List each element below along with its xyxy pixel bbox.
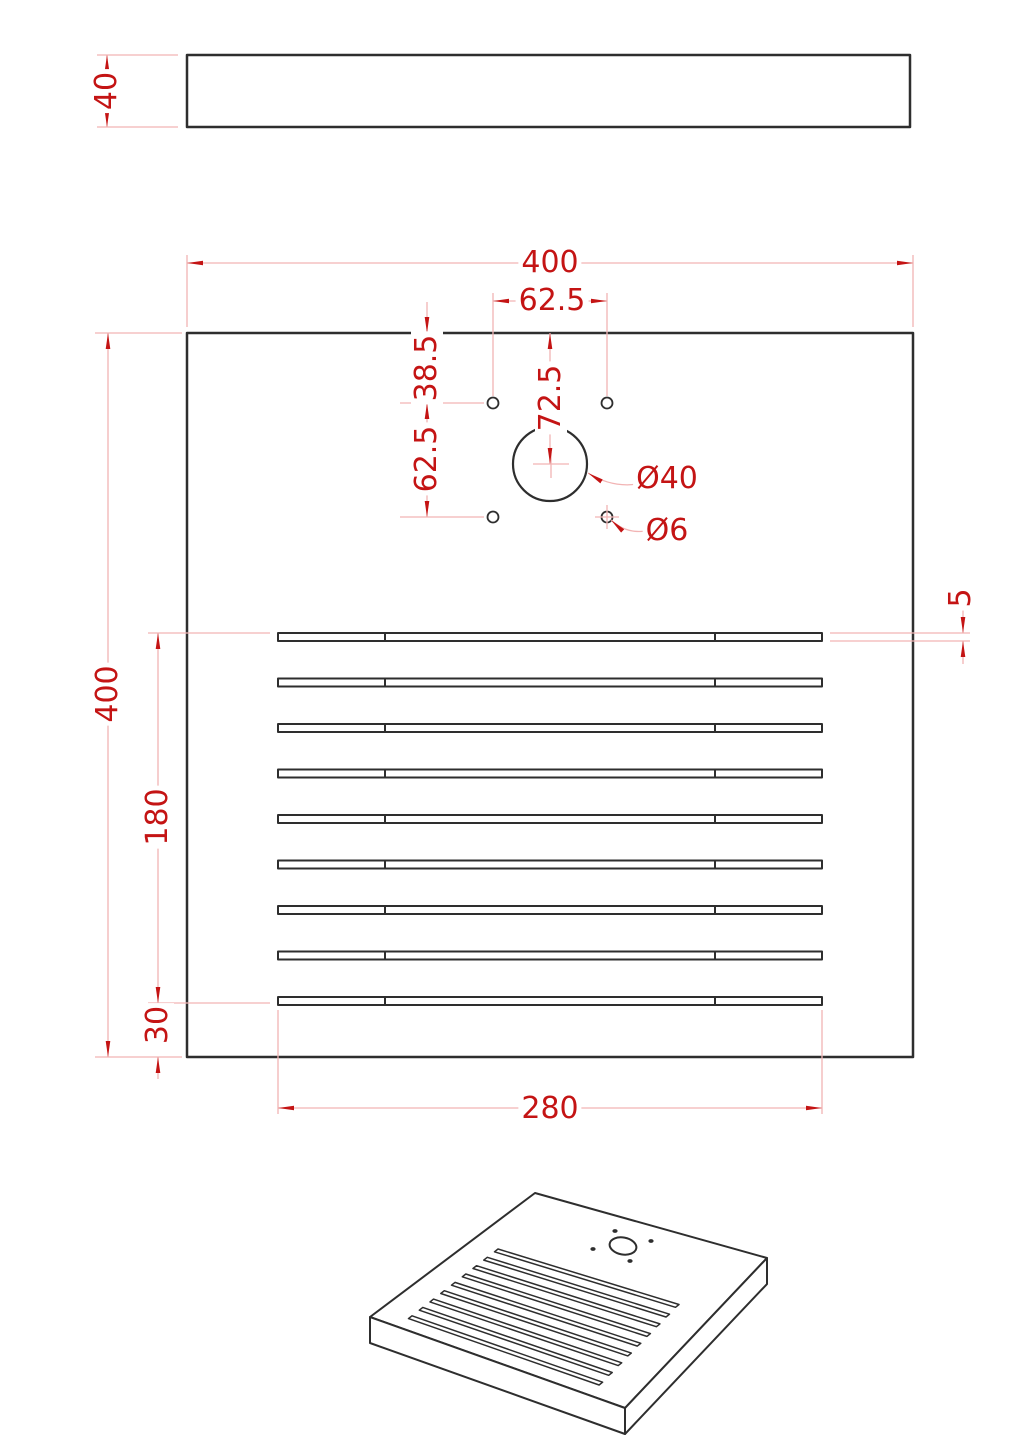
slot xyxy=(278,906,822,914)
isometric-view xyxy=(370,1193,767,1434)
dim-label-slot-bottom-offset: 30 xyxy=(142,1003,174,1047)
slot xyxy=(278,997,822,1005)
dim-label-small-hole-diameter: Ø6 xyxy=(643,515,692,547)
iso-mounting-hole xyxy=(612,1229,617,1233)
slot xyxy=(278,815,822,823)
dim-label-center-hole-offset: 72.5 xyxy=(535,362,567,435)
slot xyxy=(278,679,822,687)
slot xyxy=(278,861,822,869)
iso-mounting-hole xyxy=(648,1239,653,1243)
mounting-hole xyxy=(488,512,499,523)
dim-label-slot-group-span: 180 xyxy=(142,785,174,848)
engineering-drawing-canvas xyxy=(0,0,1024,1448)
iso-mounting-hole xyxy=(627,1259,632,1263)
drawing-sheet: 40 400 62.5 38.5 72.5 62.5 Ø40 Ø6 5 400 … xyxy=(0,0,1024,1448)
dim-label-plate-width: 400 xyxy=(518,247,581,279)
dim-label-hole-spacing-y: 62.5 xyxy=(411,423,443,496)
dim-label-center-hole-diameter: Ø40 xyxy=(633,463,701,495)
dim-label-slot-height: 5 xyxy=(945,585,977,610)
dim-label-plate-height: 400 xyxy=(92,662,124,725)
slot xyxy=(278,952,822,960)
dim-label-slot-length: 280 xyxy=(518,1093,581,1125)
slot xyxy=(278,633,822,641)
side-plate-outline xyxy=(187,55,910,127)
mounting-hole xyxy=(488,398,499,409)
slot xyxy=(278,724,822,732)
iso-top-face xyxy=(370,1193,767,1408)
side-profile-view xyxy=(187,55,910,127)
dim-label-hole-spacing-x: 62.5 xyxy=(516,285,589,317)
dim-label-hole-offset-top: 38.5 xyxy=(411,332,443,405)
slot xyxy=(278,770,822,778)
iso-mounting-hole xyxy=(590,1247,595,1251)
dim-label-side-thickness: 40 xyxy=(91,69,123,113)
mounting-hole xyxy=(602,398,613,409)
